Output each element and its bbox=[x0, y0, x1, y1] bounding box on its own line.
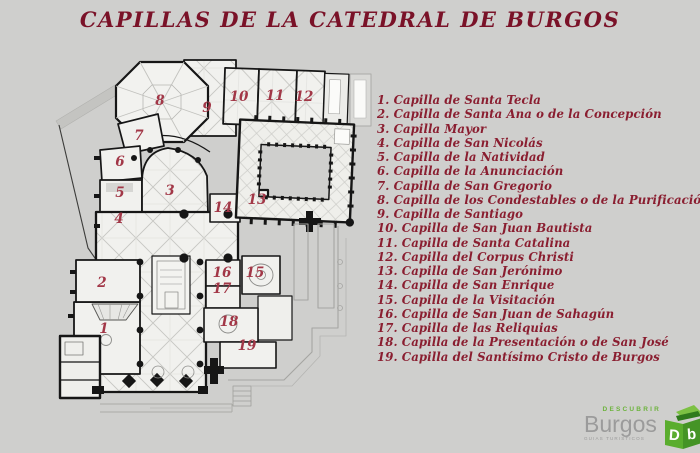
legend-item: 4. Capilla de San Nicolás bbox=[377, 136, 700, 150]
infographic-page: CAPILLAS DE LA CATEDRAL DE BURGOS bbox=[0, 0, 700, 453]
legend-item: 1. Capilla de Santa Tecla bbox=[377, 93, 700, 107]
legend-item: 5. Capilla de la Natividad bbox=[377, 150, 700, 164]
descubrir-burgos-logo: DESCUBRIR Burgos GUIAS TURISTICOS D b bbox=[584, 406, 700, 452]
legend-item: 15. Capilla de la Visitación bbox=[377, 293, 700, 307]
legend-item: 13. Capilla de San Jerónimo bbox=[377, 264, 700, 278]
chapel-legend-list: 1. Capilla de Santa Tecla2. Capilla de S… bbox=[377, 93, 700, 364]
logo-burgos-text: Burgos bbox=[584, 414, 662, 434]
legend-item: 12. Capilla del Corpus Christi bbox=[377, 250, 700, 264]
legend-item: 11. Capilla de Santa Catalina bbox=[377, 236, 700, 250]
legend-item: 19. Capilla del Santísimo Cristo de Burg… bbox=[377, 350, 700, 364]
legend-item: 9. Capilla de Santiago bbox=[377, 207, 700, 221]
legend-item: 2. Capilla de Santa Ana o de la Concepci… bbox=[377, 107, 700, 121]
legend-item: 6. Capilla de la Anunciación bbox=[377, 164, 700, 178]
svg-text:D: D bbox=[668, 427, 680, 445]
open-box-icon: D b bbox=[664, 404, 700, 452]
legend-item: 8. Capilla de los Condestables o de la P… bbox=[377, 193, 700, 207]
svg-text:b: b bbox=[687, 426, 697, 444]
logo-text: DESCUBRIR Burgos GUIAS TURISTICOS bbox=[584, 406, 662, 441]
legend-item: 3. Capilla Mayor bbox=[377, 122, 700, 136]
legend-item: 17. Capilla de las Reliquias bbox=[377, 321, 700, 335]
legend-item: 16. Capilla de San Juan de Sahagún bbox=[377, 307, 700, 321]
legend-item: 7. Capilla de San Gregorio bbox=[377, 179, 700, 193]
logo-tagline-text: GUIAS TURISTICOS bbox=[584, 436, 662, 441]
legend-item: 10. Capilla de San Juan Bautista bbox=[377, 221, 700, 235]
legend-item: 18. Capilla de la Presentación o de San … bbox=[377, 335, 700, 349]
legend-item: 14. Capilla de San Enrique bbox=[377, 278, 700, 292]
